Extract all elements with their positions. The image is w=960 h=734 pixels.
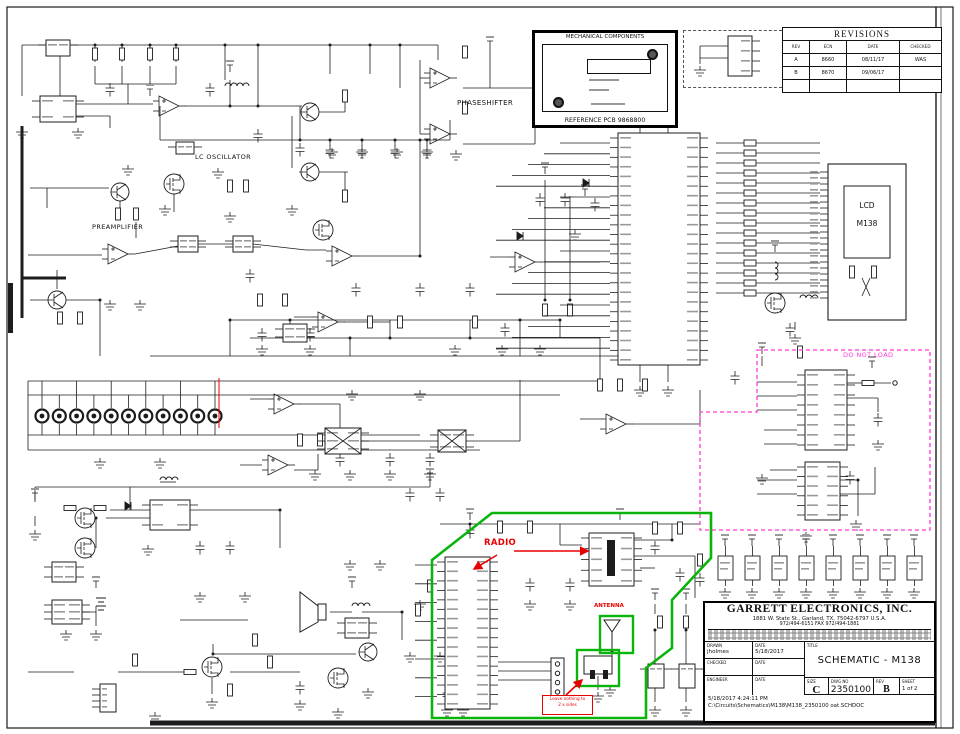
checked-date-cell: DATE: [753, 659, 804, 676]
checked-cell: CHECKED: [705, 659, 752, 676]
drawn-value: jholmes: [707, 649, 750, 655]
revisions-header-row: REV ECN DATE CHECKED: [783, 41, 941, 54]
radio-label: RADIO: [484, 538, 516, 548]
section-label-lc-oscillator: LC OSCILLATOR: [195, 153, 251, 161]
dashed-connector-box: [683, 30, 787, 88]
sheet-value: 1 of 2: [902, 686, 932, 692]
mechanical-components-box: MECHANICAL COMPONENTS REFERENCE PCB 9868…: [532, 30, 678, 128]
mounting-pad-icon: [553, 97, 564, 108]
title-block: GARRETT ELECTRONICS, INC. 1881 W. State …: [703, 601, 936, 723]
mechanical-title: MECHANICAL COMPONENTS: [535, 34, 675, 40]
title-label: TITLE: [807, 643, 932, 648]
revision-row-empty: [783, 80, 941, 92]
drawn-date: 5/18/2017: [755, 649, 802, 655]
rev-col-header: REV: [783, 41, 810, 53]
company-phone: 972/494-6151 FAX 972/494-1881: [705, 622, 934, 628]
fine-print: [708, 629, 931, 640]
rev-cell: REV B: [874, 678, 900, 694]
ecn-col-header: ECN: [810, 41, 847, 53]
mechanical-part-outline: [587, 59, 651, 74]
keepout-note-line2: 2 x sides: [543, 702, 592, 708]
checked-label: CHECKED: [707, 660, 750, 665]
dwg-no-label: DWG NO: [831, 679, 871, 684]
section-label-preamplifier: PREAMPLIFIER: [92, 223, 143, 231]
drawn-label: DRAWN: [707, 643, 750, 648]
antenna-label: ANTENNA: [594, 603, 624, 609]
lcd-label-line2: M138: [845, 219, 889, 228]
lcd-label-line1: LCD: [845, 201, 889, 210]
drawn-cell: DRAWN jholmes: [705, 642, 752, 659]
schematic-title: SCHEMATIC - M138: [807, 655, 932, 666]
title-block-grid: DRAWN jholmes CHECKED ENGINEER DATE 5/18…: [705, 641, 934, 695]
checked-col-header: CHECKED: [900, 41, 941, 53]
company-name: GARRETT ELECTRONICS, INC.: [705, 603, 934, 616]
reference-pcb-label: REFERENCE PCB 9868800: [535, 117, 675, 124]
antenna-keepout-note: Leave nothing to 2 x sides: [542, 695, 593, 715]
date-col-header: DATE: [847, 41, 900, 53]
section-label-phaseshifter: PHASESHIFTER: [457, 99, 513, 107]
schematic-sheet: LC OSCILLATOR PHASESHIFTER PREAMPLIFIER …: [0, 0, 960, 734]
date-label: DATE: [755, 643, 802, 648]
print-timestamp: 5/18/2017 4:24:11 PM: [708, 696, 931, 703]
revisions-table: REVISIONS REV ECN DATE CHECKED A 8660 08…: [782, 27, 942, 93]
title-cell: TITLE SCHEMATIC - M138: [805, 642, 934, 678]
engineer-label: ENGINEER: [707, 677, 750, 682]
size-row: SIZE C DWG NO 2350100 REV B SHEET 1 of 2: [805, 678, 934, 695]
size-cell: SIZE C: [805, 678, 829, 694]
do-not-load-label: DO NOT LOAD: [843, 351, 893, 359]
revisions-title: REVISIONS: [783, 28, 941, 41]
engineer-date-cell: DATE: [753, 676, 804, 693]
drawn-date-cell: DATE 5/18/2017: [753, 642, 804, 659]
dwg-no-cell: DWG NO 2350100: [829, 678, 874, 694]
revision-row-b: B 8670 09/06/17: [783, 67, 941, 80]
file-path: C:\Circuits\Schematics\M138\M138_2350100…: [708, 703, 931, 710]
dwg-no-value: 2350100: [831, 685, 871, 695]
engineer-cell: ENGINEER: [705, 676, 752, 693]
size-value: C: [807, 684, 826, 696]
sheet-cell: SHEET 1 of 2: [900, 678, 934, 694]
mounting-pad-icon: [647, 49, 658, 60]
sheet-label: SHEET: [902, 679, 932, 684]
revision-row-a: A 8660 08/11/17 WAS: [783, 54, 941, 67]
rev-value: B: [876, 684, 897, 695]
